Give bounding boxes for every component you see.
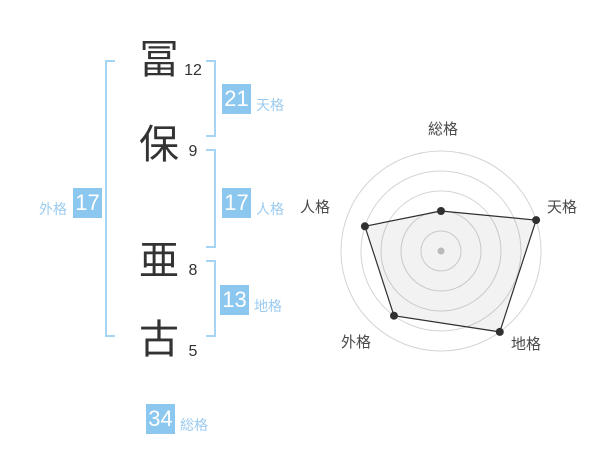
soukaku-value-badge: 34 <box>146 404 175 434</box>
radar-data-point <box>361 222 369 230</box>
stroke-count-3: 8 <box>184 262 202 280</box>
radar-axis-label: 人格 <box>300 199 330 216</box>
radar-chart: 総格天格地格外格人格 <box>291 101 591 381</box>
jinkaku-value-badge: 17 <box>222 188 251 218</box>
gaikaku-value-badge: 17 <box>73 188 102 218</box>
jinkaku-label: 人格 <box>256 199 284 219</box>
stroke-count-4: 5 <box>184 343 202 361</box>
radar-axis-label: 地格 <box>511 336 541 353</box>
name-character-1: 冨 <box>136 40 182 80</box>
soukaku-label: 総格 <box>180 415 208 435</box>
chikaku-label: 地格 <box>254 296 282 316</box>
stroke-count-1: 12 <box>184 62 202 80</box>
radar-axis-label: 天格 <box>547 199 577 216</box>
radar-data-point <box>532 216 540 224</box>
radar-data-point <box>496 328 504 336</box>
chikaku-value-badge: 13 <box>220 285 249 315</box>
radar-axis-label: 総格 <box>428 121 458 138</box>
name-character-3: 亜 <box>136 241 182 281</box>
jinkaku-bracket <box>206 149 216 248</box>
stroke-count-2: 9 <box>184 143 202 161</box>
tenkaku-value-badge: 21 <box>222 84 251 114</box>
gaikaku-label: 外格 <box>39 199 67 219</box>
gaikaku-bracket <box>105 60 115 337</box>
radar-data-point <box>390 312 398 320</box>
radar-axis-label: 外格 <box>341 334 371 351</box>
radar-data-point <box>437 207 445 215</box>
name-character-4: 古 <box>136 320 182 360</box>
name-analysis-panel: 冨 保 亜 古 12 9 8 5 21 天格 17 人格 17 外格 13 地格… <box>0 0 600 470</box>
name-character-2: 保 <box>136 125 182 165</box>
chikaku-bracket <box>206 260 216 337</box>
radar-chart-container: 総格天格地格外格人格 <box>291 101 591 381</box>
tenkaku-label: 天格 <box>256 95 284 115</box>
tenkaku-bracket <box>206 60 216 137</box>
